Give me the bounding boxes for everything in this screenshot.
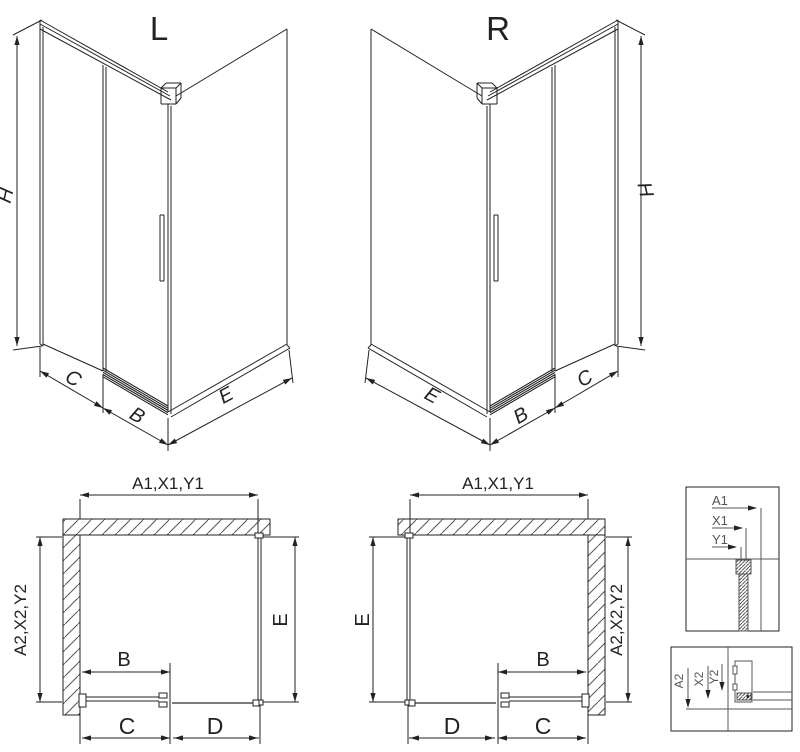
iso-right-dim-e: E bbox=[421, 383, 444, 409]
detail-top-dim-y1: Y1 bbox=[712, 532, 728, 547]
iso-right-dim-h: H bbox=[633, 180, 658, 200]
iso-left-dim-e: E bbox=[215, 383, 238, 409]
plan-right-dim-left: E bbox=[352, 613, 374, 626]
technical-drawing-page: L H C B E R H C B E A1,X1,Y1 A2,X2,Y2 E … bbox=[0, 0, 800, 752]
iso-right-title: R bbox=[486, 10, 510, 47]
iso-left-title: L bbox=[150, 10, 168, 47]
plan-right-dim-c: C bbox=[535, 713, 552, 739]
wall-hatch-bands bbox=[63, 519, 605, 715]
detail-top-dim-a1: A1 bbox=[712, 493, 728, 508]
iso-left-dim-h: H bbox=[0, 186, 19, 206]
plan-right-dim-d: D bbox=[444, 713, 461, 739]
detail-bottom-dim-x2: X2 bbox=[692, 671, 706, 686]
plan-right-dim-b: B bbox=[536, 649, 549, 671]
plan-left-dim-b: B bbox=[117, 649, 130, 671]
iso-left-dim-b: B bbox=[126, 403, 149, 429]
plan-left-dim-c: C bbox=[119, 713, 136, 739]
profile-detail-boxes bbox=[671, 487, 792, 731]
iso-right-dim-c: C bbox=[573, 365, 597, 392]
plan-left-dim-left: A2,X2,Y2 bbox=[11, 584, 30, 656]
plan-left-dim-right: E bbox=[270, 613, 292, 626]
iso-right-dim-b: B bbox=[510, 403, 533, 429]
detail-top-dim-x1: X1 bbox=[712, 513, 728, 528]
detail-bottom-dim-y2: Y2 bbox=[707, 669, 721, 684]
iso-right-view-geometry bbox=[365, 20, 645, 451]
shower-enclosure-technical-drawing: L H C B E R H C B E A1,X1,Y1 A2,X2,Y2 E … bbox=[0, 0, 800, 752]
dimension-labels: L H C B E R H C B E A1,X1,Y1 A2,X2,Y2 E … bbox=[0, 10, 728, 739]
plan-left-dim-d: D bbox=[207, 713, 224, 739]
plan-right-dim-top: A1,X1,Y1 bbox=[462, 474, 534, 493]
iso-left-view-geometry bbox=[13, 20, 293, 451]
plan-right-dim-right: A2,X2,Y2 bbox=[607, 584, 626, 656]
plan-left-dim-top: A1,X1,Y1 bbox=[132, 474, 204, 493]
iso-left-dim-c: C bbox=[61, 366, 85, 393]
detail-bottom-dim-a2: A2 bbox=[672, 673, 686, 688]
